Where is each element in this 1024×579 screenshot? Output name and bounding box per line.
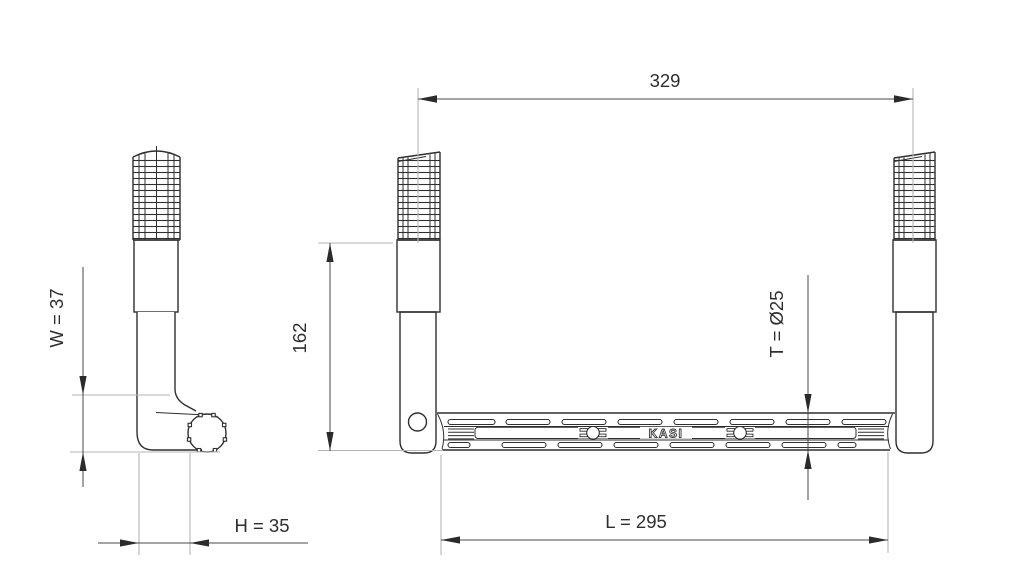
leg-collar	[397, 240, 440, 312]
dim-arrow	[120, 539, 139, 546]
dimension-label: 162	[289, 323, 310, 354]
dim-arrow	[79, 452, 86, 471]
dim-arrow	[418, 95, 437, 103]
tread-slots-bottom	[448, 443, 856, 448]
dim-arrow	[326, 243, 333, 262]
technical-drawing-page: KASI	[0, 0, 1024, 579]
dimension-tube-t25: T = Ø25	[766, 275, 812, 500]
step-bar: KASI	[437, 413, 895, 450]
dimension-length-l295: L = 295	[441, 452, 888, 555]
side-view	[133, 146, 227, 452]
dimension-label: H = 35	[234, 515, 289, 536]
dim-arrow	[441, 536, 460, 543]
dim-arrow	[804, 394, 811, 413]
extension-lines	[318, 243, 443, 451]
dimension-offset-h35: H = 35	[98, 453, 308, 555]
dimension-label: T = Ø25	[766, 290, 787, 357]
front-view: KASI	[397, 152, 936, 453]
kasi-logo-icon	[725, 427, 755, 440]
thread-lines	[398, 158, 440, 240]
dim-arrow	[190, 539, 209, 546]
manhole-step-drawing: KASI	[0, 0, 1024, 579]
brand-plate: KASI	[640, 427, 692, 441]
kasi-logo-icon	[578, 427, 608, 440]
leg-collar	[893, 240, 936, 312]
extension-lines	[139, 453, 190, 555]
dimension-label: W = 37	[46, 288, 67, 347]
dimension-width-w37: W = 37	[46, 267, 220, 487]
thread-lines	[894, 158, 935, 240]
dimension-span-329: 329	[418, 70, 913, 243]
side-view-shaft-foot	[137, 312, 202, 450]
front-view-right-leg	[893, 152, 936, 453]
side-view-collar	[134, 240, 178, 312]
dim-arrow	[804, 450, 811, 469]
brand-text: KASI	[649, 427, 684, 441]
dim-arrow	[869, 536, 888, 543]
side-view-threaded-stud	[133, 146, 180, 240]
leg-foot	[896, 312, 933, 453]
dim-arrow	[894, 95, 913, 103]
dimension-height-162: 162	[289, 243, 443, 451]
dim-arrow	[79, 376, 86, 395]
extension-centerlines	[418, 88, 913, 243]
leg-foot	[400, 312, 436, 453]
dimension-label: 329	[650, 70, 681, 91]
foot-front-edge	[175, 312, 196, 411]
dimension-label: L = 295	[605, 511, 667, 532]
leg-hole	[409, 413, 427, 431]
dim-arrow	[326, 432, 333, 451]
